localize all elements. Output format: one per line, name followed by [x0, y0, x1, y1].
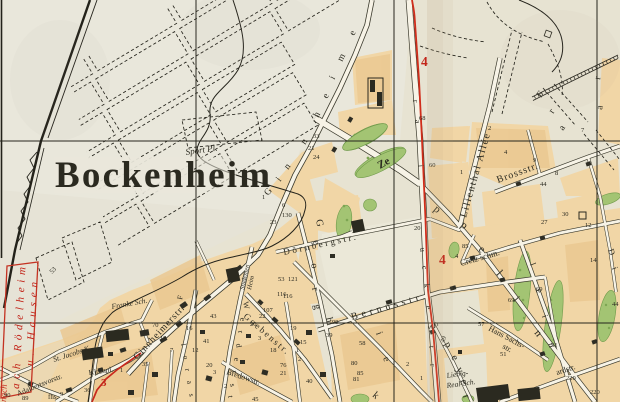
svg-text:u: u: [418, 247, 427, 252]
svg-text:51: 51: [500, 351, 507, 358]
svg-text:24: 24: [313, 154, 320, 161]
svg-text:90: 90: [4, 392, 11, 399]
svg-text:9: 9: [533, 157, 536, 164]
svg-text:2: 2: [298, 356, 301, 363]
svg-text:3: 3: [101, 377, 107, 389]
svg-text:57: 57: [478, 321, 485, 328]
svg-text:35: 35: [142, 361, 149, 368]
svg-text:20: 20: [250, 321, 257, 328]
svg-text:2: 2: [488, 125, 491, 132]
svg-text:45: 45: [252, 396, 259, 402]
svg-text:21: 21: [280, 370, 287, 377]
svg-text:1: 1: [296, 347, 299, 354]
svg-text:1: 1: [262, 194, 265, 201]
svg-text:44: 44: [612, 301, 619, 308]
svg-text:14: 14: [590, 257, 597, 264]
svg-text:81: 81: [353, 376, 360, 383]
svg-text:12: 12: [585, 222, 592, 229]
svg-text:220: 220: [590, 389, 600, 396]
svg-text:3: 3: [213, 369, 216, 376]
svg-text:4: 4: [421, 54, 428, 69]
svg-text:19: 19: [290, 325, 297, 332]
svg-text:33: 33: [313, 133, 320, 140]
svg-text:41: 41: [203, 338, 210, 345]
svg-text:19: 19: [160, 335, 167, 342]
svg-text:121: 121: [288, 276, 298, 283]
svg-text:20: 20: [414, 225, 421, 232]
svg-text:69: 69: [536, 286, 543, 293]
svg-text:39: 39: [326, 332, 333, 339]
svg-text:1: 1: [120, 367, 123, 374]
svg-text:68: 68: [419, 115, 426, 122]
svg-text:1: 1: [460, 169, 463, 176]
svg-text:27: 27: [541, 219, 548, 226]
svg-text:53: 53: [278, 276, 285, 283]
svg-text:89: 89: [22, 395, 29, 402]
svg-text:130: 130: [282, 212, 292, 219]
svg-text:16: 16: [186, 325, 193, 332]
svg-text:70: 70: [152, 322, 159, 329]
svg-text:85: 85: [462, 243, 469, 250]
svg-text:30: 30: [562, 211, 569, 218]
svg-text:21: 21: [308, 145, 315, 152]
svg-text:15: 15: [300, 339, 307, 346]
svg-text:80: 80: [351, 360, 358, 367]
svg-text:3: 3: [258, 335, 261, 342]
svg-text:8: 8: [555, 170, 558, 177]
svg-text:99: 99: [332, 319, 339, 326]
svg-text:220: 220: [566, 375, 576, 382]
svg-text:9: 9: [60, 391, 63, 398]
svg-text:43: 43: [210, 313, 217, 320]
svg-text:12: 12: [192, 347, 199, 354]
svg-text:76: 76: [280, 362, 287, 369]
svg-text:Bockenheim: Bockenheim: [55, 155, 272, 196]
svg-text:20: 20: [206, 362, 213, 369]
svg-text:69: 69: [508, 297, 515, 304]
svg-text:40: 40: [306, 378, 313, 385]
svg-text:51: 51: [551, 342, 558, 349]
svg-text:22: 22: [259, 313, 266, 320]
svg-text:18: 18: [270, 347, 277, 354]
svg-text:2: 2: [224, 383, 227, 390]
svg-text:44: 44: [540, 181, 547, 188]
svg-text:58: 58: [359, 340, 366, 347]
svg-text:116: 116: [277, 291, 287, 298]
svg-text:36: 36: [84, 387, 91, 394]
svg-text:1: 1: [420, 375, 423, 382]
svg-text:fhs.: fhs.: [48, 393, 59, 401]
svg-text:2: 2: [406, 361, 409, 368]
svg-text:23: 23: [270, 219, 277, 226]
